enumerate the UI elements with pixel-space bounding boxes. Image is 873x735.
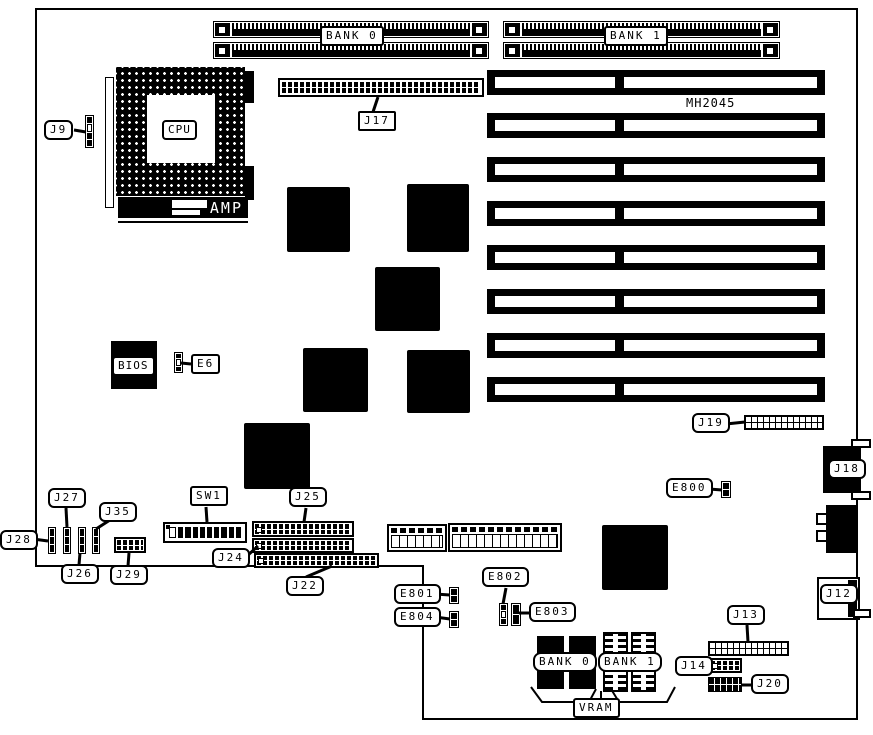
label-j24: J24 (212, 548, 250, 568)
qfp-chip-4 (303, 348, 368, 412)
jumper-pin (87, 133, 92, 139)
jumper-pin (176, 367, 181, 371)
simm-clip (505, 44, 520, 57)
label-j12: J12 (820, 584, 858, 604)
jumper-pin (723, 490, 729, 496)
label-j22: J22 (286, 576, 324, 596)
pin (94, 545, 98, 552)
cpu-socket-lever (105, 77, 114, 208)
jumper-pin (723, 483, 729, 489)
label-j29: J29 (110, 565, 148, 585)
e6-jumper (174, 352, 183, 373)
isa-slot-6 (487, 289, 825, 314)
e804-jumper (449, 611, 459, 628)
simm-clip (215, 23, 230, 36)
simm-clip (472, 44, 487, 57)
pin (50, 537, 54, 544)
isa-slot-2 (487, 113, 825, 138)
isa-slot-segment (495, 208, 615, 219)
jumper-pin (513, 605, 519, 614)
isa-slot-segment (624, 296, 817, 307)
j9-jumper (85, 115, 94, 148)
jumper-pin (451, 613, 457, 619)
label-e800: E800 (666, 478, 713, 498)
bracket-tab-1 (851, 439, 871, 448)
e801-jumper (449, 587, 459, 604)
label-j19: J19 (692, 413, 730, 433)
switch-cell (236, 527, 241, 538)
amp-socket-base: AMP (118, 197, 248, 218)
audio-connector (826, 505, 858, 553)
pin (94, 529, 98, 536)
amp-detail (172, 210, 200, 215)
pin-row (282, 88, 480, 93)
isa-slot-segment (624, 120, 817, 131)
label-j35: J35 (99, 502, 137, 522)
label-e804: E804 (394, 607, 441, 627)
isa-slot-segment (624, 384, 817, 395)
pin-row (282, 82, 480, 87)
label-cpu: CPU (162, 120, 197, 140)
isa-slot-7 (487, 333, 825, 358)
power-connector-2 (448, 523, 562, 552)
simm-clip (763, 23, 778, 36)
isa-slot-segment (624, 208, 817, 219)
e800-jumper (721, 481, 731, 498)
pin-row (711, 666, 739, 670)
term-latch-row (452, 527, 558, 532)
qfp-chip-6 (244, 423, 310, 489)
isa-slot-segment (495, 252, 615, 263)
pin (50, 529, 54, 536)
label-e803: E803 (529, 602, 576, 622)
label-j26: J26 (61, 564, 99, 584)
jumper-pin (176, 354, 181, 358)
isa-slot-3 (487, 157, 825, 182)
bracket-tab-3 (853, 609, 871, 618)
sw1-dip-switch (163, 522, 247, 543)
qfp-chip-1 (287, 187, 350, 252)
term-pin-row (452, 534, 558, 548)
isa-slot-segment (495, 340, 615, 351)
jumper-pin (501, 605, 506, 610)
label-vram-bank0: BANK 0 (533, 652, 597, 672)
pin-row (257, 561, 376, 565)
term-latch-row (391, 528, 443, 533)
jumper-pin (451, 589, 457, 595)
jumper-pin (451, 596, 457, 602)
jumper-pin (87, 117, 92, 123)
switch-cell (221, 527, 226, 538)
pin (65, 545, 69, 552)
isa-slot-segment (495, 77, 615, 88)
simm-clip (215, 44, 230, 57)
pin-row (711, 661, 739, 665)
label-vram-bank1: BANK 1 (598, 652, 662, 672)
jumper-pin (513, 615, 519, 624)
label-bios: BIOS (112, 356, 155, 376)
switch-cell (207, 527, 212, 538)
isa-slot-segment (624, 77, 817, 88)
pin (50, 545, 54, 552)
qfp-chip-7 (602, 525, 668, 590)
pin-row (257, 556, 376, 560)
pin (94, 537, 98, 544)
pin-row (117, 546, 143, 551)
switch-cell (185, 527, 190, 538)
simm-clip (505, 23, 520, 36)
pin (80, 529, 84, 536)
label-j18: J18 (828, 459, 866, 479)
label-j13: J13 (727, 605, 765, 625)
pin-row (255, 524, 351, 529)
j22-header (254, 553, 379, 568)
isa-slot-segment (495, 296, 615, 307)
qfp-chip-2 (407, 184, 469, 252)
label-bank1-simm: BANK 1 (604, 26, 668, 46)
qfp-chip-5 (407, 350, 470, 413)
amp-detail (172, 200, 207, 208)
isa-slot-segment (495, 120, 615, 131)
isa-slot-8 (487, 377, 825, 402)
motherboard-diagram: AMP (0, 0, 873, 735)
switch-cell (178, 527, 183, 538)
jumper-pin (501, 611, 506, 618)
switch-cell (193, 527, 198, 538)
pin-row (117, 540, 143, 545)
e802-jumper (499, 603, 508, 626)
label-j9: J9 (44, 120, 73, 140)
jumper-pin (176, 359, 181, 365)
switch-cell (229, 527, 234, 538)
isa-slot-segment (624, 164, 817, 175)
j29-header (114, 537, 146, 553)
pin (65, 529, 69, 536)
j24-header (252, 538, 354, 553)
label-j28: J28 (0, 530, 38, 550)
term-pin-row (391, 535, 443, 548)
simm-clip (472, 23, 487, 36)
j13-header (708, 641, 789, 656)
label-j27: J27 (48, 488, 86, 508)
j19-header (744, 415, 824, 430)
label-j14: J14 (675, 656, 713, 676)
cpu-socket-tab-top (245, 71, 254, 103)
simm-clip (763, 44, 778, 57)
label-j17: J17 (358, 111, 396, 131)
switch-cell (214, 527, 219, 538)
j25-header (252, 521, 354, 537)
pin (65, 537, 69, 544)
power-connector-1 (387, 524, 447, 552)
amp-base-line (118, 221, 248, 223)
label-e801: E801 (394, 584, 441, 604)
label-e6: E6 (191, 354, 220, 374)
pin-row (255, 530, 351, 535)
j14-header (708, 658, 742, 673)
pin (80, 537, 84, 544)
isa-slot-segment (624, 252, 817, 263)
isa-slot-segment (495, 384, 615, 395)
bracket-tab-2 (851, 491, 871, 500)
board-edge-top (35, 8, 858, 10)
label-sw1: SW1 (190, 486, 228, 506)
label-j20: J20 (751, 674, 789, 694)
j27-header (63, 527, 71, 554)
pin-row (255, 541, 351, 545)
j17-header (278, 78, 484, 97)
qfp-chip-3 (375, 267, 440, 331)
board-edge-left (35, 8, 37, 567)
jumper-pin (87, 140, 92, 146)
pin-row (255, 546, 351, 550)
label-mh2045: MH2045 (686, 96, 735, 110)
label-vram: VRAM (573, 698, 620, 718)
label-bank0-simm: BANK 0 (320, 26, 384, 46)
audio-jack-2 (816, 530, 828, 542)
switch-cell (169, 527, 176, 538)
switch-cell (200, 527, 205, 538)
j20-header (708, 677, 742, 692)
jumper-pin (501, 619, 506, 624)
isa-slot-5 (487, 245, 825, 270)
j28-header (48, 527, 56, 554)
isa-slot-segment (495, 164, 615, 175)
audio-jack-1 (816, 513, 828, 525)
amp-brand-text: AMP (210, 199, 243, 217)
label-e802: E802 (482, 567, 529, 587)
board-edge-bottom (422, 718, 858, 720)
j26-header (78, 527, 86, 554)
label-j25: J25 (289, 487, 327, 507)
jumper-pin (451, 620, 457, 626)
jumper-pin (87, 124, 92, 132)
e803-jumper (511, 603, 521, 626)
j35-header (92, 527, 100, 554)
cpu-socket-tab-bottom (245, 166, 254, 200)
isa-slot-4 (487, 201, 825, 226)
isa-slot-segment (624, 340, 817, 351)
pin (80, 545, 84, 552)
isa-slot-1 (487, 70, 825, 95)
